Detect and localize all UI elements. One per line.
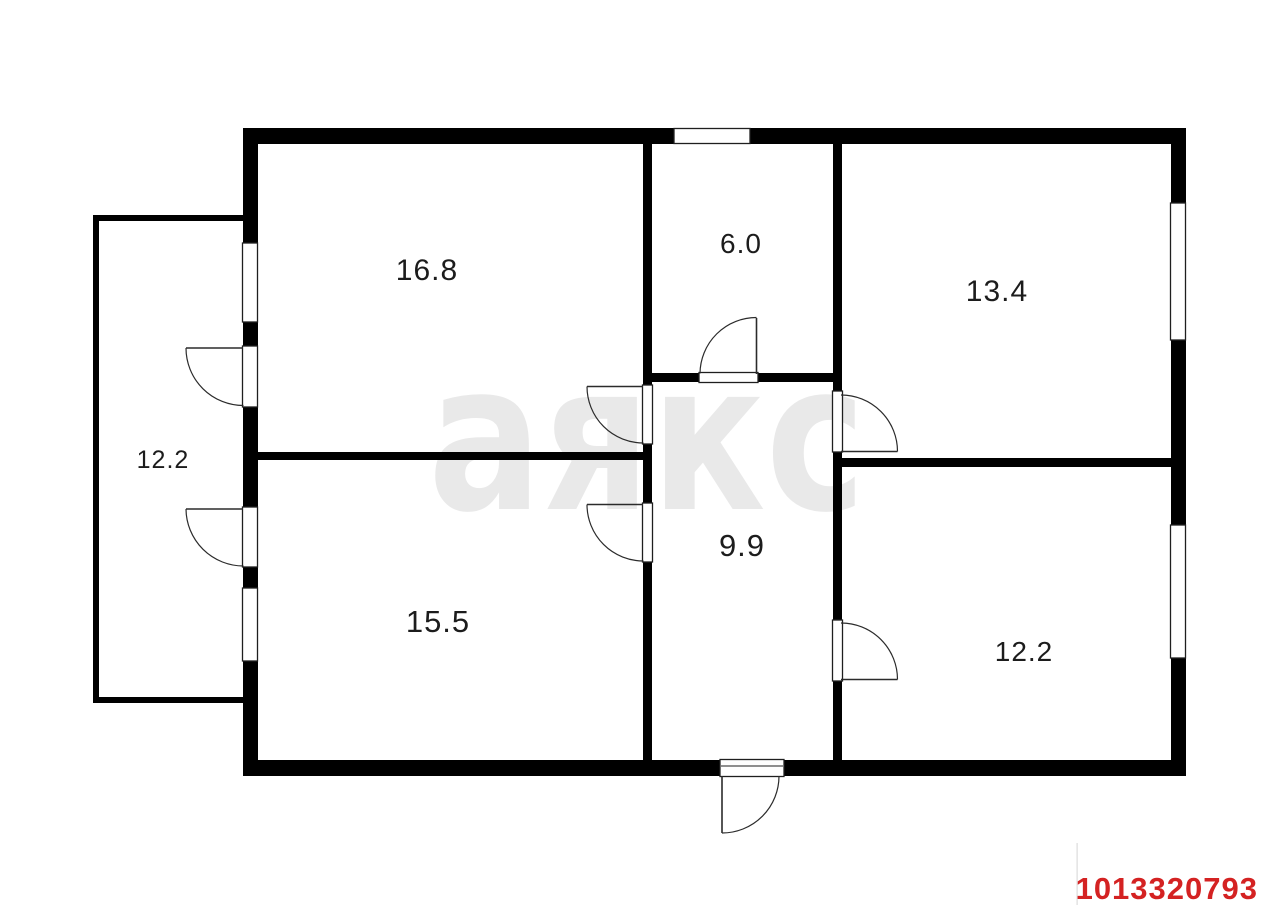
room-area-label-13-4: 13.4 — [966, 275, 1028, 308]
door-frame-hall-12-2 — [833, 620, 843, 681]
door-frame-hall-15-5 — [643, 503, 653, 562]
window-right-13-4 — [1171, 203, 1186, 340]
floor-plan-page: аякс — [0, 0, 1280, 905]
wall-outer-left — [243, 128, 258, 776]
room-area-label-6-0: 6.0 — [720, 228, 762, 259]
room-area-label-12-2-annex: 12.2 — [137, 446, 190, 474]
window-right-12-2 — [1171, 525, 1186, 658]
wall-annex-left — [93, 215, 99, 703]
listing-id: 1013320793 — [1076, 871, 1258, 905]
door-frame-annex-lower — [243, 507, 258, 567]
door-frame-hall-6-0 — [699, 373, 758, 383]
floor-plan-svg: аякс — [0, 0, 1280, 905]
door-frame-hall-13-4 — [833, 391, 843, 452]
room-area-label-15-5: 15.5 — [406, 604, 470, 639]
door-frame-hall-16-8 — [643, 385, 653, 444]
wall-annex-top — [93, 215, 243, 221]
room-area-label-16-8: 16.8 — [396, 254, 458, 287]
window-annex-upper — [243, 243, 258, 322]
wall-divider-right-rooms — [842, 458, 1171, 467]
wall-divider-left-rooms — [258, 452, 643, 460]
wall-hall-left — [643, 144, 652, 760]
window-top-vent — [674, 129, 750, 144]
wall-outer-bottom — [243, 760, 1186, 776]
room-area-label-12-2-right: 12.2 — [995, 636, 1054, 667]
room-area-label-9-9: 9.9 — [719, 528, 765, 563]
door-frame-entrance — [720, 760, 784, 777]
wall-annex-bottom — [93, 697, 243, 703]
window-annex-lower — [243, 588, 258, 661]
door-frame-annex-upper — [243, 346, 258, 407]
